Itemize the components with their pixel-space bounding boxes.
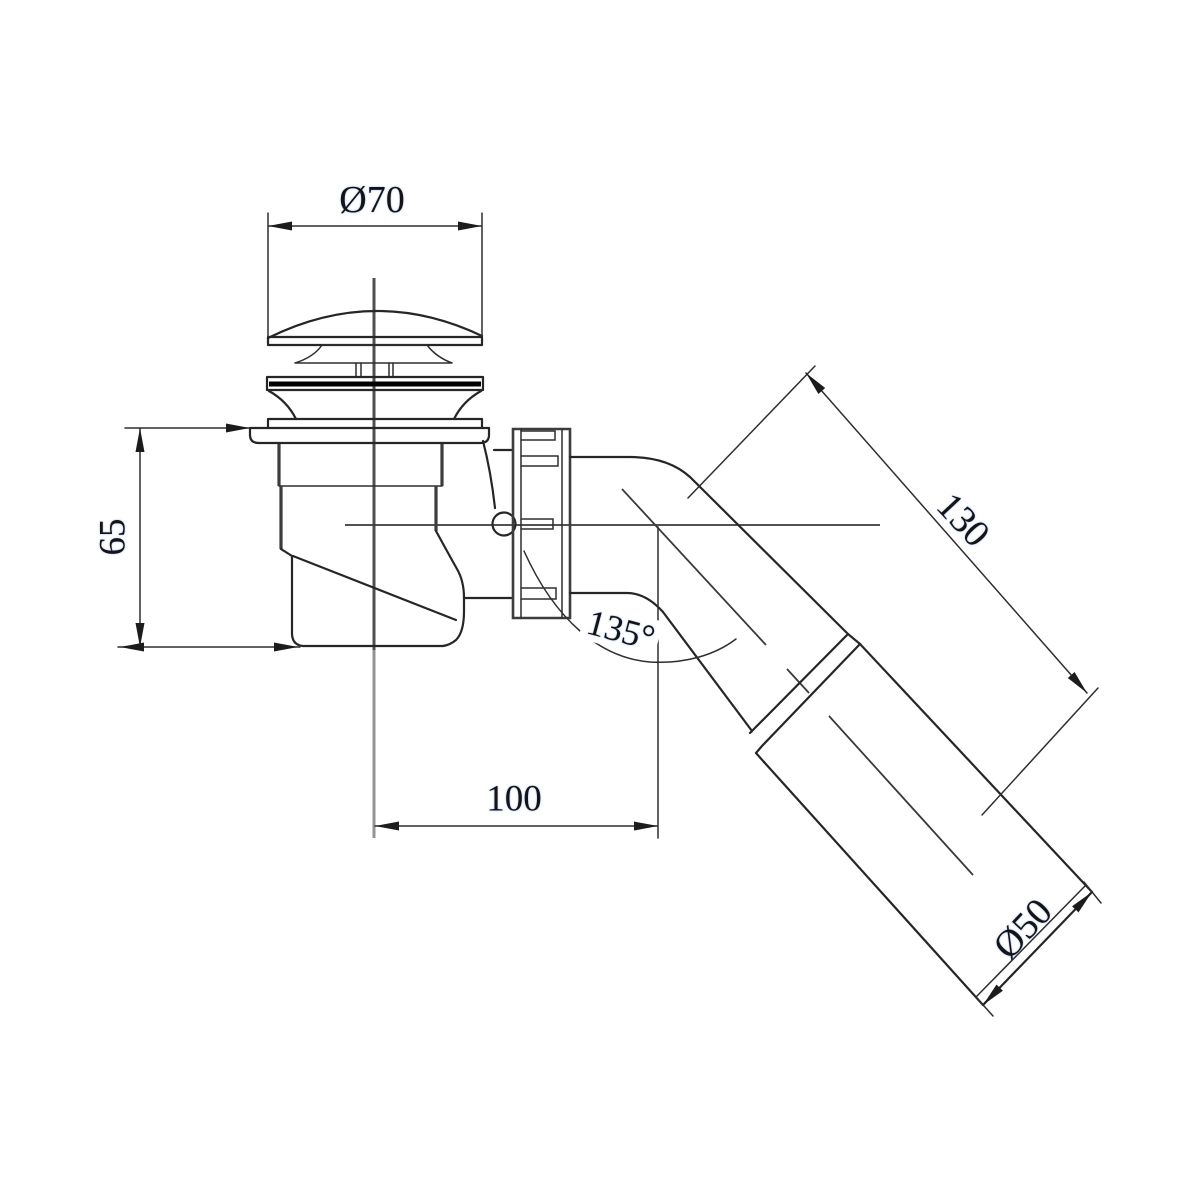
plug-cap xyxy=(250,311,489,443)
dimension-trap-height xyxy=(118,424,300,652)
dim-label-cap-diameter: Ø70 xyxy=(339,181,404,219)
dimension-pipe-length xyxy=(688,366,1098,815)
dim-label-horizontal-length: 100 xyxy=(486,781,542,818)
coupling-nut xyxy=(513,429,570,618)
centerlines xyxy=(345,278,973,875)
dim-label-trap-height: 65 xyxy=(95,519,132,556)
drain-technical-drawing xyxy=(0,0,1200,1200)
drain-body xyxy=(279,441,516,646)
technical-drawing-page: Ø70 65 100 135° 130 Ø50 xyxy=(0,0,1200,1200)
